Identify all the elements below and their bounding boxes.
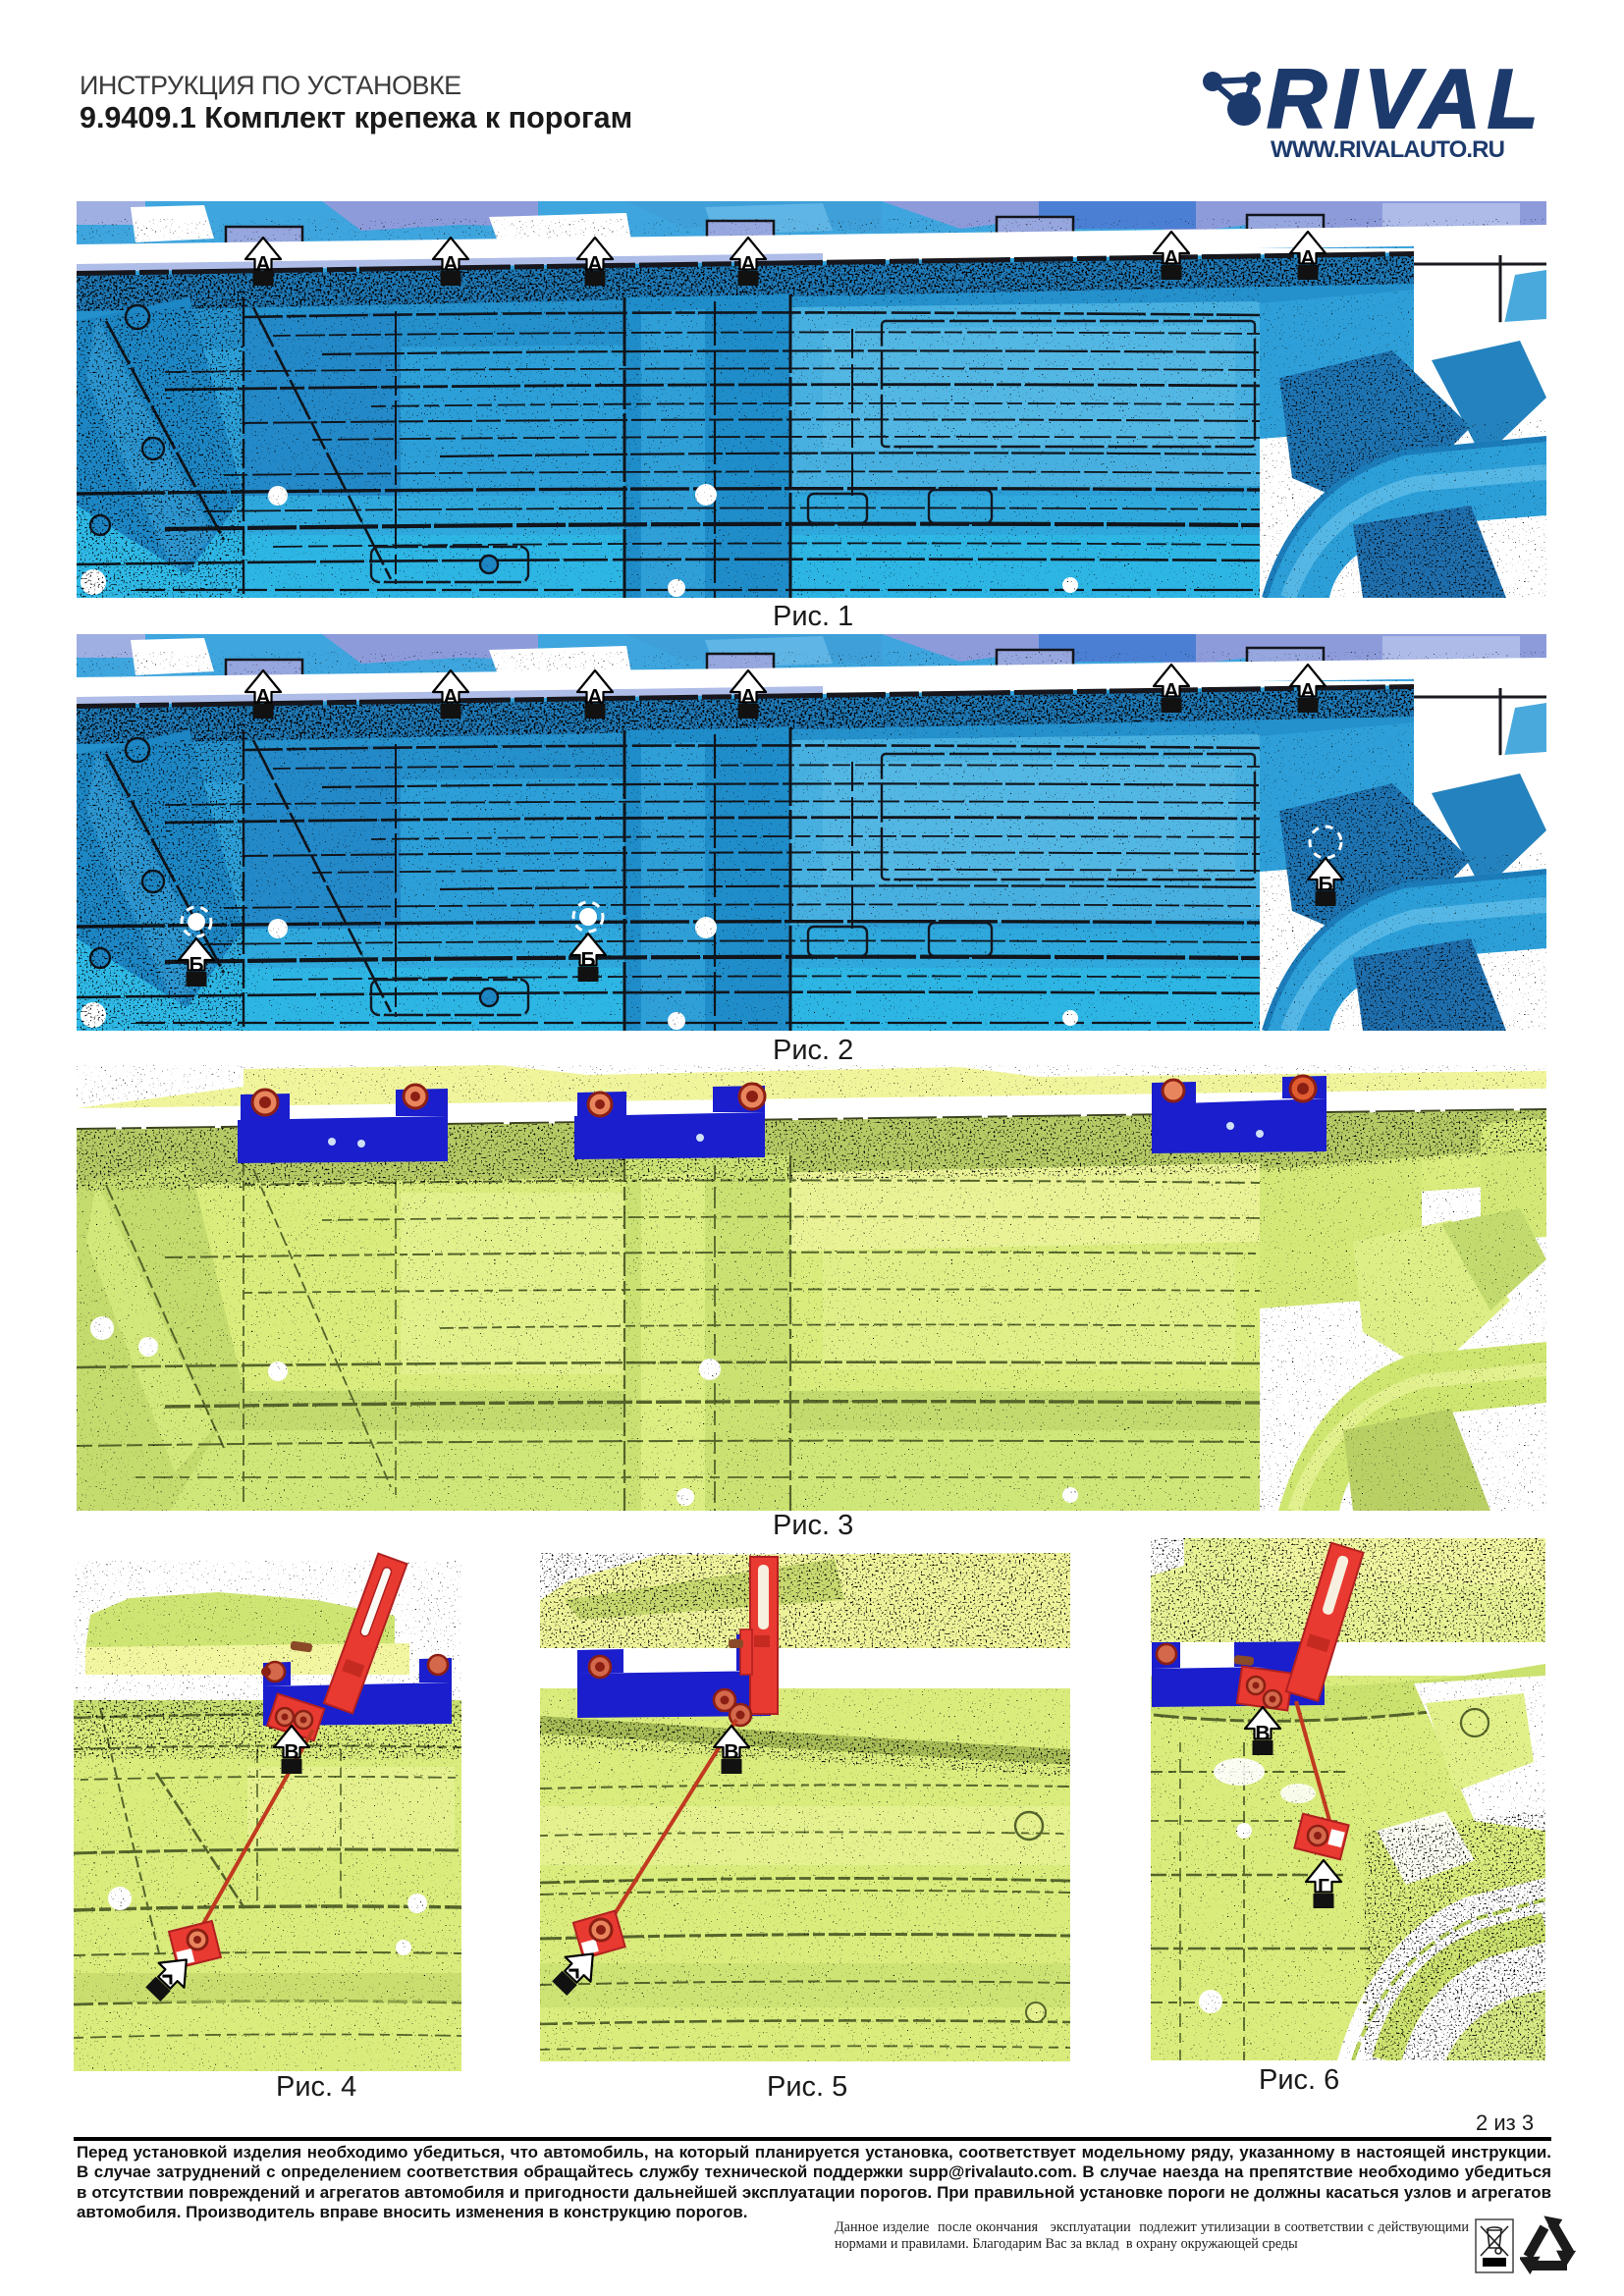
svg-text:WWW.RIVALAUTO.RU: WWW.RIVALAUTO.RU — [1271, 136, 1504, 163]
svg-text:RIVAL: RIVAL — [1267, 57, 1545, 146]
